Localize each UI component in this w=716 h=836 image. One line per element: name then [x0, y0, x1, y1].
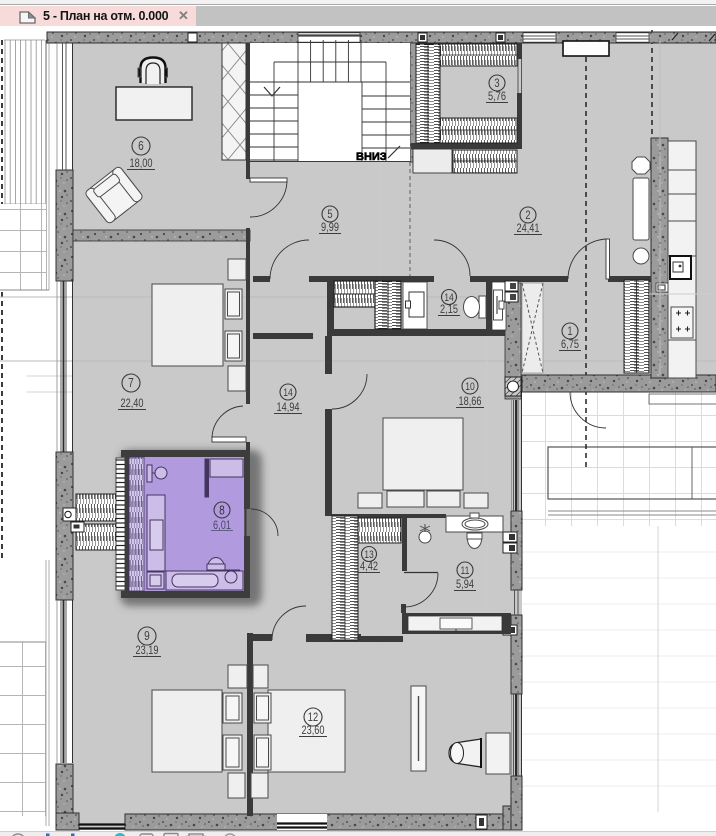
- svg-text:18,00: 18,00: [129, 158, 152, 170]
- svg-text:9: 9: [144, 629, 150, 643]
- svg-text:12: 12: [308, 711, 318, 724]
- svg-text:14: 14: [283, 387, 293, 399]
- svg-text:1: 1: [567, 325, 572, 338]
- svg-text:6,75: 6,75: [561, 339, 579, 351]
- svg-text:5,76: 5,76: [488, 91, 506, 103]
- svg-text:7: 7: [128, 376, 134, 390]
- svg-text:23,19: 23,19: [135, 645, 158, 657]
- svg-text:6: 6: [138, 139, 144, 153]
- svg-text:3: 3: [494, 77, 499, 90]
- svg-text:14,94: 14,94: [276, 402, 299, 414]
- svg-text:11: 11: [461, 565, 470, 577]
- svg-text:5,94: 5,94: [456, 579, 474, 591]
- svg-text:13: 13: [364, 549, 374, 561]
- svg-text:23,60: 23,60: [301, 725, 324, 737]
- svg-text:2: 2: [525, 209, 530, 222]
- svg-text:18,66: 18,66: [458, 396, 481, 408]
- svg-text:ВНИЗ: ВНИЗ: [356, 151, 387, 163]
- svg-text:10: 10: [465, 381, 475, 393]
- svg-text:5: 5: [327, 208, 332, 221]
- svg-text:9,99: 9,99: [321, 222, 339, 234]
- svg-text:24,41: 24,41: [516, 223, 539, 235]
- svg-text:8: 8: [219, 503, 225, 517]
- svg-text:14: 14: [444, 292, 454, 304]
- svg-text:4,42: 4,42: [360, 561, 378, 573]
- svg-text:2,15: 2,15: [440, 304, 458, 316]
- svg-text:22,40: 22,40: [120, 398, 143, 410]
